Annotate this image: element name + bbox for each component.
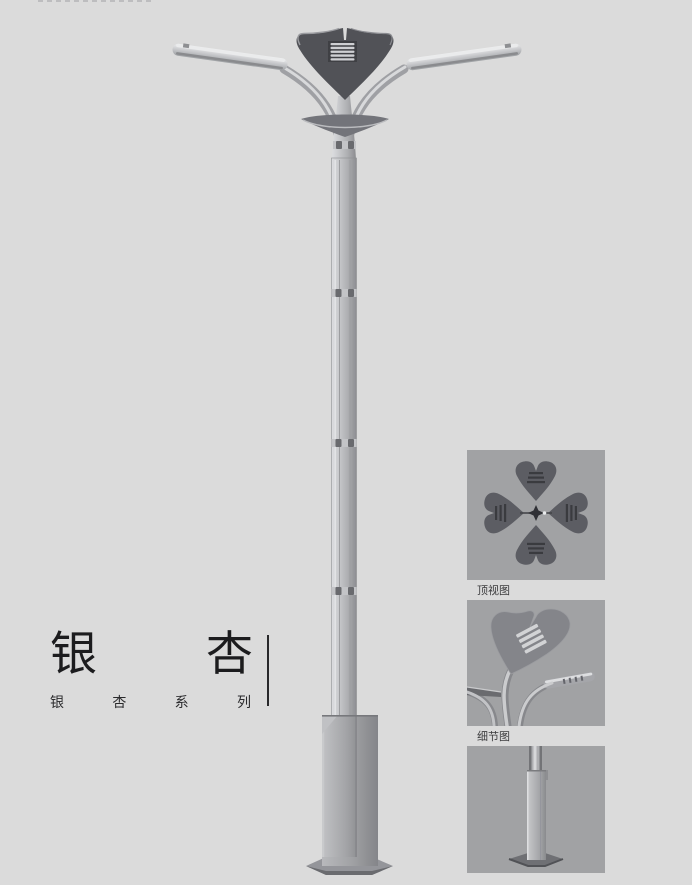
title-block: 银 杏 银 杏 系 列 — [50, 624, 280, 712]
subtitle-char: 列 — [237, 692, 251, 712]
lamp-pole — [332, 96, 357, 718]
catalog-page: { "colors": { "page_background": "#dbdbd… — [0, 0, 692, 885]
pole-joint — [333, 141, 356, 149]
detail-panel: 顶视图 — [467, 450, 605, 875]
product-title-char: 杏 — [206, 624, 253, 685]
subtitle-char: 系 — [175, 692, 189, 712]
subtitle-char: 银 — [50, 692, 64, 712]
right-lamp-fixture — [406, 42, 523, 71]
top-view-image — [467, 450, 605, 580]
product-title-char: 银 — [50, 624, 97, 685]
base-plate — [306, 857, 393, 875]
product-title: 银 杏 — [50, 624, 253, 685]
pole-joint — [332, 289, 357, 297]
pole-joint — [332, 587, 357, 595]
left-lamp-fixture — [172, 42, 289, 71]
lamp-collar — [301, 115, 389, 138]
product-series-subtitle: 银 杏 系 列 — [50, 692, 251, 712]
detail-figure-detail-view: 细节图 — [467, 600, 605, 744]
base-view-image — [467, 746, 605, 873]
crown-louvers — [328, 41, 357, 62]
detail-view-caption: 细节图 — [467, 726, 605, 744]
detail-figure-top-view: 顶视图 — [467, 450, 605, 598]
top-view-caption: 顶视图 — [467, 580, 605, 598]
pole-base — [322, 715, 378, 866]
detail-figure-base-view — [467, 746, 605, 873]
subtitle-char: 杏 — [112, 692, 126, 712]
pole-joint — [332, 439, 357, 447]
detail-view-image — [467, 600, 605, 726]
title-divider — [267, 635, 269, 706]
